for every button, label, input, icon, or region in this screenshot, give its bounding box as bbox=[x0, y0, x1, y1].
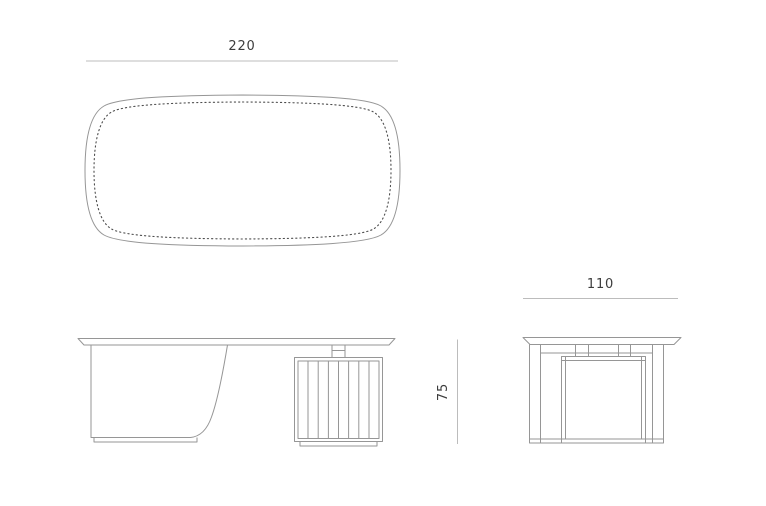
side-tabletop bbox=[523, 338, 681, 345]
side-connectors bbox=[576, 345, 631, 357]
side-plinth-strip bbox=[530, 439, 664, 443]
front-leg-plinth bbox=[94, 438, 197, 443]
top-view-stitch-line bbox=[94, 102, 391, 239]
front-pedestal-slats bbox=[308, 361, 369, 439]
front-pedestal-plinth bbox=[300, 442, 377, 447]
side-plinth-ticks bbox=[541, 439, 653, 443]
front-view bbox=[78, 339, 395, 447]
dimension-label-length: 220 bbox=[86, 40, 398, 54]
top-view-outline bbox=[85, 95, 400, 246]
drawing-linework bbox=[0, 0, 766, 506]
front-tabletop bbox=[78, 339, 395, 346]
front-pedestal-connector bbox=[332, 345, 345, 358]
dimension-drawing-canvas: 220 110 75 bbox=[0, 0, 766, 506]
front-leg-panel bbox=[91, 345, 228, 438]
dimension-label-depth: 110 bbox=[523, 278, 678, 292]
dimension-label-height: 75 bbox=[437, 377, 451, 407]
top-view bbox=[85, 61, 400, 246]
side-pedestal-box bbox=[562, 357, 646, 440]
side-view bbox=[458, 299, 682, 445]
